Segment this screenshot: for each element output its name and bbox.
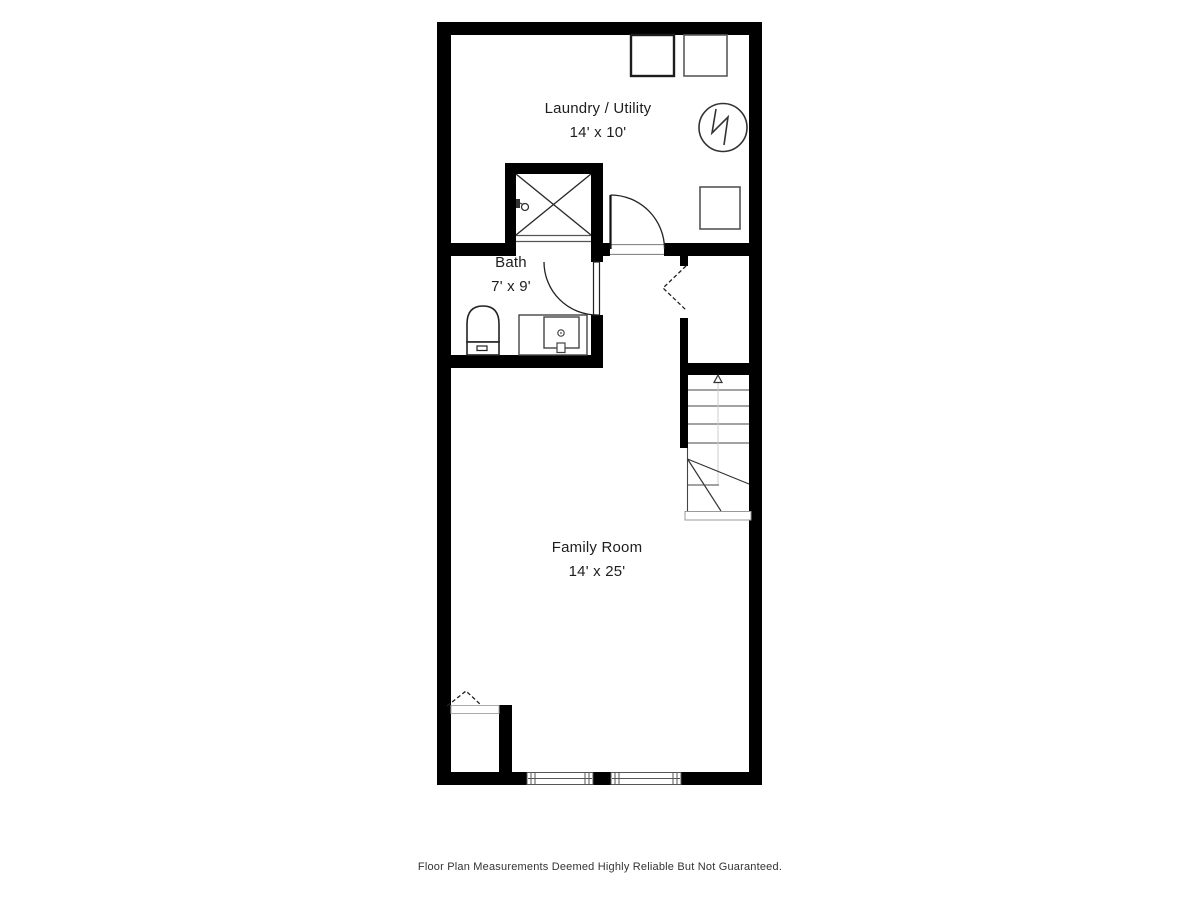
- room-name: Family Room: [552, 539, 643, 556]
- room-dimensions: 14' x 25': [552, 560, 643, 584]
- floor-plan-page: Laundry / Utility 14' x 10' Bath 7' x 9'…: [0, 0, 1200, 900]
- stair-closet-wall-stub: [680, 256, 688, 266]
- east-wall: [749, 22, 762, 785]
- south-wall: [437, 772, 762, 785]
- bath-door: [544, 262, 600, 315]
- washer-icon: [631, 35, 674, 76]
- dryer-icon: [684, 35, 727, 76]
- family-room-label: Family Room 14' x 25': [552, 536, 643, 584]
- closet-east-wall: [499, 705, 512, 772]
- bath-east-wall-upper: [591, 243, 603, 262]
- shower-head-icon: [516, 199, 529, 211]
- stairwell-west-wall: [680, 318, 688, 448]
- room-dimensions: 7' x 9': [491, 275, 531, 299]
- closet-under-stairs-front: [447, 691, 499, 714]
- bath-room-label: Bath 7' x 9': [491, 251, 531, 299]
- window: [611, 773, 681, 785]
- vanity-sink-icon: [519, 315, 587, 355]
- north-wall: [437, 22, 762, 35]
- furnace-icon: [700, 187, 740, 229]
- stair-landing: [685, 512, 751, 521]
- laundry-door: [610, 195, 665, 255]
- stairs-north-wall: [687, 363, 749, 375]
- closet-bifold-door: [663, 266, 686, 310]
- shower: [505, 163, 603, 243]
- bath-south-wall: [437, 355, 603, 368]
- room-name: Laundry / Utility: [545, 100, 652, 117]
- closet-bifold-door-icon: [447, 691, 481, 706]
- room-dimensions: 14' x 10': [545, 121, 652, 145]
- laundry-room-label: Laundry / Utility 14' x 10': [545, 97, 652, 145]
- stair-direction-arrow-icon: [714, 375, 722, 383]
- laundry-south-wall-east: [664, 243, 762, 256]
- disclaimer-text: Floor Plan Measurements Deemed Highly Re…: [418, 861, 782, 873]
- water-heater-icon: [699, 104, 747, 152]
- west-wall: [437, 22, 451, 785]
- toilet-icon: [467, 306, 499, 355]
- stairs: [685, 375, 751, 520]
- window: [527, 773, 593, 785]
- room-name: Bath: [495, 254, 527, 271]
- laundry-south-wall-mid: [602, 243, 610, 256]
